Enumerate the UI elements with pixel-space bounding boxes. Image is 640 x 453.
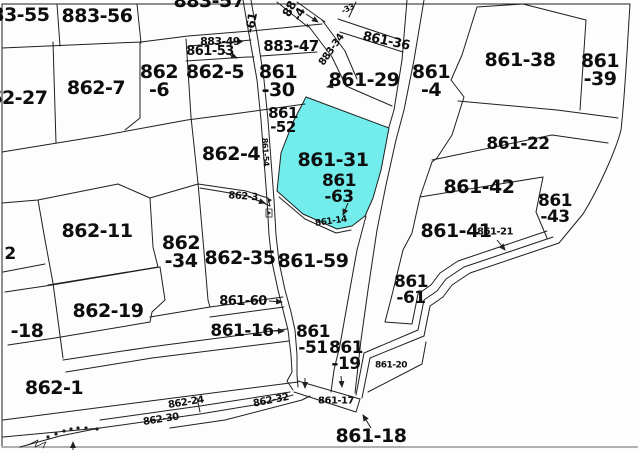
parcel-label-862-11: 862-11 [62, 222, 133, 240]
parcel-label-861-22: 861-22 [486, 136, 549, 152]
parcel-label-861-30: 861 -30 [259, 63, 297, 99]
parcel-label-2: 2 [4, 246, 15, 262]
parcel-label--61: -61 [245, 12, 260, 34]
parcel-label-861-21: 861-21 [477, 227, 513, 237]
parcel-label-883-49: 883-49 [200, 37, 240, 47]
parcel-label-883-55: 883-55 [0, 6, 50, 24]
parcel-label-862-5: 862-5 [186, 63, 244, 81]
parcel-label-861-18: 861-18 [336, 427, 407, 445]
parcel-label-861-63: 861 -63 [322, 173, 356, 205]
parcel-label-862-4: 862-4 [202, 145, 260, 163]
parcel-label-862-24: 862-24 [168, 395, 205, 410]
parcel-label-861-36: 861-36 [361, 31, 410, 53]
parcel-label-861-14: 861-14 [315, 216, 348, 229]
parcel-label-862-3: 862-3 [228, 191, 258, 203]
parcel-label-861-39: 861 -39 [581, 52, 619, 88]
parcel-label-861-43: 861 -43 [538, 193, 572, 225]
parcel-label-883-47: 883-47 [263, 39, 318, 53]
parcel-label-861-59: 861-59 [278, 252, 349, 270]
parcel-label-861-52: 861 -52 [268, 106, 298, 135]
parcel-label-862-6: 862 -6 [140, 63, 178, 99]
parcel-label-862-32: 862-32 [252, 393, 289, 409]
parcel-label-883-56: 883-56 [62, 7, 133, 25]
parcel-label--18: -18 [11, 322, 44, 340]
parcel-label--33: -33 [341, 3, 356, 15]
parcel-label-861-38: 861-38 [485, 51, 556, 69]
parcel-label-861-54: 861-54 [260, 138, 270, 167]
parcel-label-862-34: 862 -34 [162, 234, 200, 270]
parcel-label-861-29: 861-29 [329, 71, 400, 89]
cadastral-map: 883-55883-56883-57-6188 -4-33883-49861-5… [0, 0, 640, 453]
parcel-label-861-16: 861-16 [210, 323, 273, 339]
parcel-label-862-7: 862-7 [67, 79, 125, 97]
parcel-label-862-19: 862-19 [73, 302, 144, 320]
parcel-label-861-60: 861-60 [219, 296, 267, 308]
parcel-label-861-61: 861 -61 [394, 274, 428, 306]
parcel-label-88-4: 88 -4 [281, 0, 308, 24]
parcel-label-862-27: 862-27 [0, 89, 48, 107]
parcel-label-861-42: 861-42 [444, 178, 515, 196]
parcel-label-883-34: 883-34 [318, 33, 346, 68]
parcel-label-861-17: 861-17 [318, 396, 354, 406]
parcel-label-861-20: 861-20 [375, 362, 407, 371]
parcel-label-861-4: 861 -4 [412, 63, 450, 99]
parcel-label-862-1: 862-1 [25, 379, 83, 397]
parcel-label-861-41: 861-41 [421, 222, 492, 240]
parcel-label-861-19: 861 -19 [329, 340, 363, 372]
parcel-label-861-31: 861-31 [298, 151, 369, 169]
parcel-label-862-35: 862-35 [205, 249, 276, 267]
parcel-label-861-51: 861 -51 [296, 324, 330, 356]
parcel-label-883-57: 883-57 [174, 0, 245, 10]
parcel-label-862-30: 862-30 [143, 412, 180, 427]
labels-layer: 883-55883-56883-57-6188 -4-33883-49861-5… [0, 0, 640, 453]
parcel-label-861-53: 861-53 [186, 46, 234, 58]
